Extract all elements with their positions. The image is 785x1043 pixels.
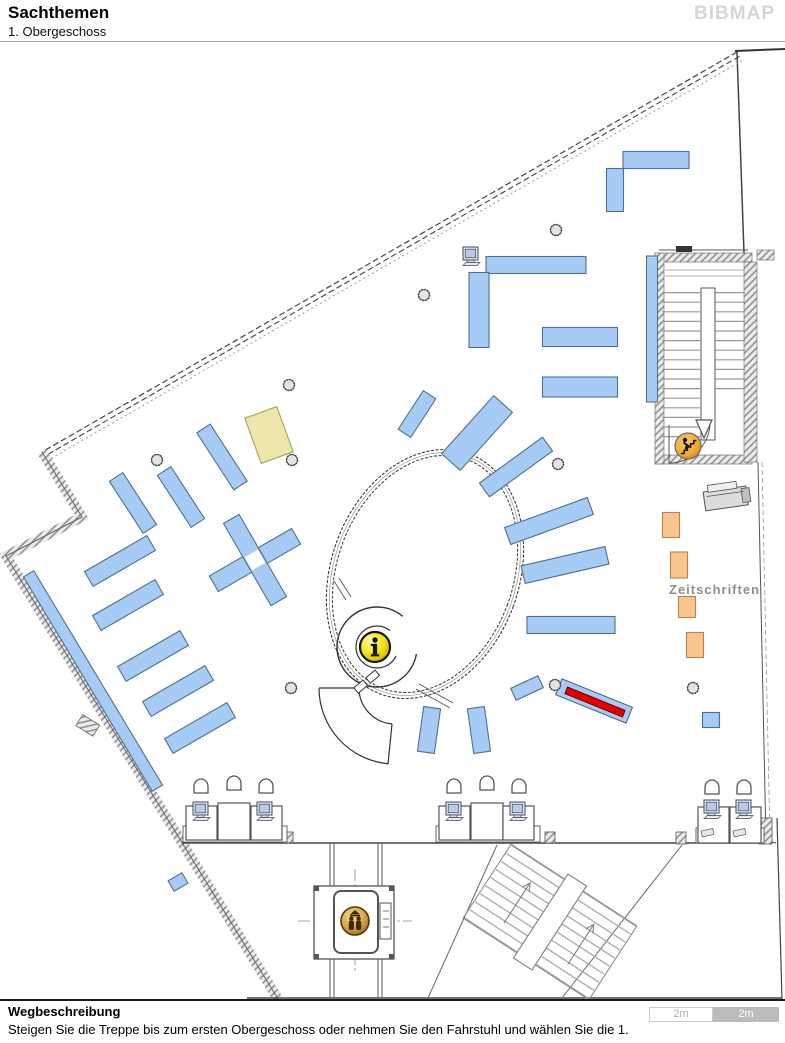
scale-segment-light: 2m <box>649 1007 713 1022</box>
floor-plan: Zeitschriften <box>0 0 785 1043</box>
shelf-blue <box>165 703 236 754</box>
shelf-blue <box>623 152 689 169</box>
column-icon <box>286 683 297 694</box>
chair-icon <box>194 779 208 793</box>
shelf-blue <box>143 666 214 717</box>
footer: Wegbeschreibung Steigen Sie die Treppe b… <box>0 999 785 1043</box>
header: Sachthemen 1. Obergeschoss BIBMAP <box>0 0 785 42</box>
directions-text: Steigen Sie die Treppe bis zum ersten Ob… <box>8 1022 785 1037</box>
shelf-blue <box>157 467 204 528</box>
shelf-yellow <box>245 407 293 464</box>
shelf-blue <box>647 256 658 402</box>
info-icon <box>360 632 390 662</box>
column-icon <box>551 225 562 236</box>
column-icon <box>284 380 295 391</box>
column-icon <box>688 683 699 694</box>
shelf-blue <box>85 536 156 587</box>
computer-icon <box>463 247 480 266</box>
bibmap-logo: BIBMAP <box>694 3 775 25</box>
chair-icon <box>737 780 751 794</box>
column-icon <box>550 680 561 691</box>
chair-icon <box>705 780 719 794</box>
shelf-blue <box>607 169 624 212</box>
computer-icon <box>704 800 721 819</box>
shelf-blue <box>118 631 189 682</box>
shelf-blue <box>398 391 436 438</box>
chair-icon <box>512 779 526 793</box>
column-icon <box>553 459 564 470</box>
scale-bar: 2m 2m <box>649 1007 779 1022</box>
computer-icon <box>193 802 210 821</box>
stairwell <box>655 246 774 464</box>
scale-segment-dark: 2m <box>713 1007 779 1022</box>
computer-icon <box>736 800 753 819</box>
shelf-blue <box>479 437 552 497</box>
columns-layer <box>152 225 699 694</box>
elevator-icon <box>341 907 369 935</box>
shelf-blue <box>109 473 156 534</box>
shelf-blue <box>543 328 618 347</box>
shelves-layer <box>23 152 719 892</box>
shelf-blue <box>543 377 618 397</box>
shelf-blue <box>93 580 164 631</box>
column-icon <box>152 455 163 466</box>
shelf-blue <box>168 873 188 891</box>
shelf-blue <box>486 257 586 274</box>
page-title: Sachthemen <box>8 3 785 23</box>
desk <box>218 803 250 840</box>
zeitschriften-label: Zeitschriften <box>669 582 760 597</box>
shelf-blue <box>469 273 489 348</box>
shelf-blue <box>511 676 544 700</box>
shelf-orange <box>663 513 680 538</box>
info-desk <box>319 578 471 764</box>
bibmap-page: Zeitschriften Sachthemen 1. Obergeschoss… <box>0 0 785 1043</box>
computer-icon <box>257 802 274 821</box>
photocopier <box>702 480 751 511</box>
shelf-blue <box>197 424 247 490</box>
chair-icon <box>227 776 241 790</box>
shelf-blue <box>442 396 513 471</box>
shelf-orange <box>679 597 696 618</box>
computer-icon <box>510 802 527 821</box>
computer-icon <box>446 802 463 821</box>
stairs-up-icon <box>675 433 701 459</box>
page-subtitle: 1. Obergeschoss <box>8 24 785 39</box>
chair-icon <box>259 779 273 793</box>
desk <box>471 803 503 840</box>
column-icon <box>419 290 430 301</box>
column-icon <box>287 455 298 466</box>
shelf-blue <box>527 617 615 634</box>
shelf-orange <box>671 552 688 578</box>
shelf-blue <box>417 707 440 754</box>
shelf-blue <box>521 547 609 584</box>
chair-icon <box>480 776 494 790</box>
bottom-staircase <box>460 839 640 1005</box>
shelf-orange <box>687 633 704 658</box>
chair-icon <box>447 779 461 793</box>
shelf-blue <box>467 707 490 754</box>
shelf-blue <box>703 713 720 728</box>
